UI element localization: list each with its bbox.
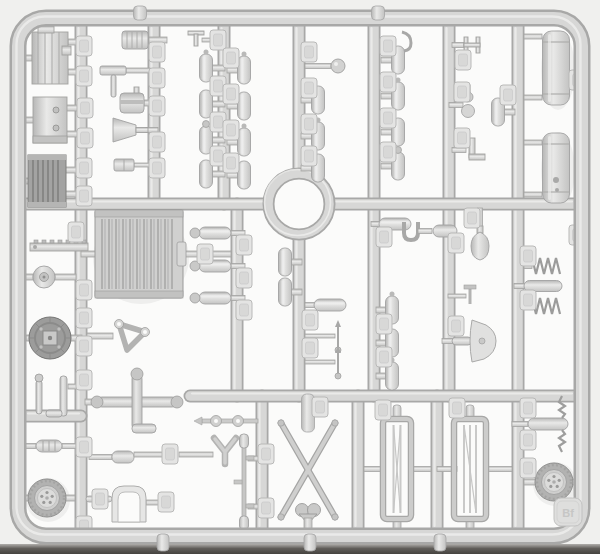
runner-h2-main (190, 394, 574, 397)
sprue-letter-tag: Bf (554, 498, 582, 526)
sprue-svg: Bf (0, 0, 600, 554)
runner-h1-right (334, 202, 574, 205)
runner-v13 (435, 396, 438, 528)
runner-v12 (356, 396, 359, 528)
runner-v5 (372, 26, 375, 396)
sprue-photo: Bf (0, 0, 600, 554)
table-edge-shadow-band (0, 544, 600, 554)
sprue-tag-label: Bf (562, 507, 574, 519)
runner-v4-top (297, 26, 300, 170)
